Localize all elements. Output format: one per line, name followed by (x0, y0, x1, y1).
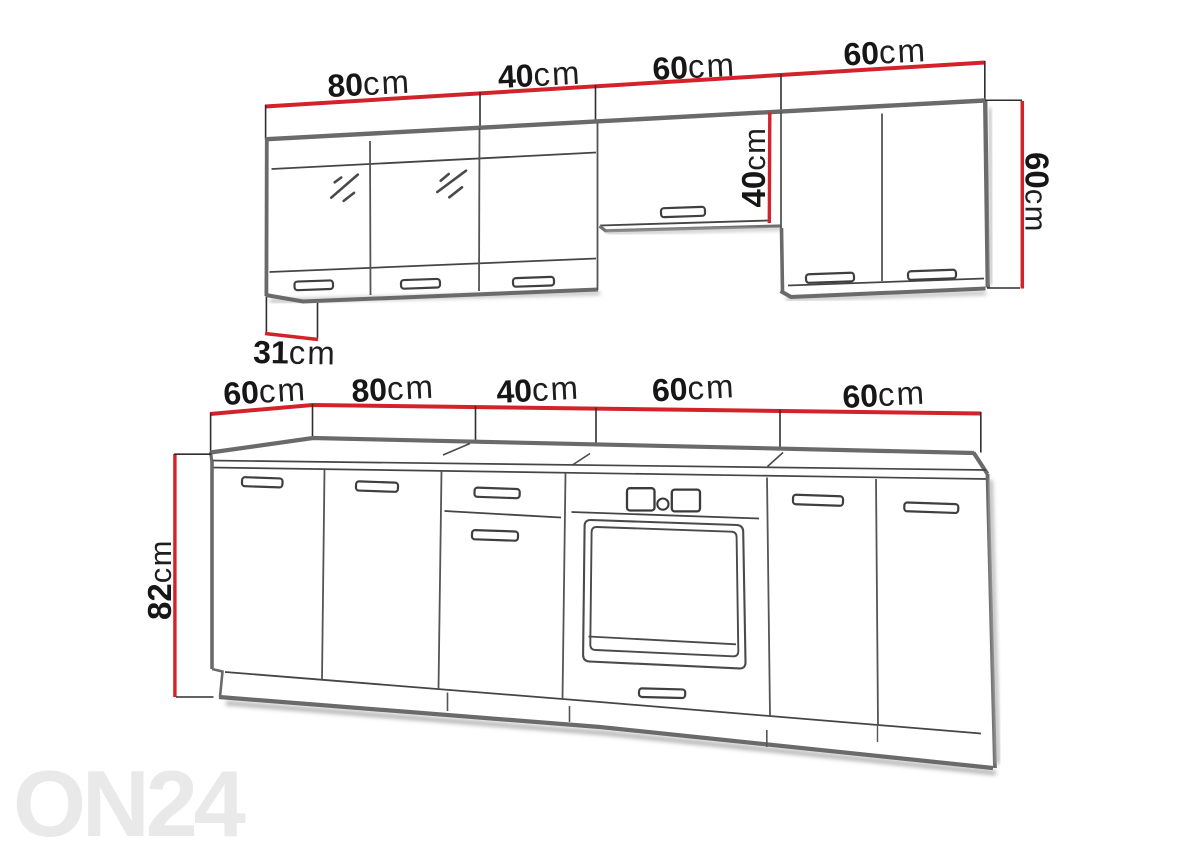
svg-text:40cm: 40cm (495, 369, 580, 410)
svg-text:31cm: 31cm (253, 333, 337, 371)
svg-text:ON24: ON24 (13, 751, 246, 856)
svg-text:40cm: 40cm (735, 127, 772, 208)
svg-text:60cm: 60cm (841, 374, 926, 415)
svg-text:40cm: 40cm (497, 54, 582, 95)
svg-text:60cm: 60cm (222, 370, 308, 412)
svg-text:60cm: 60cm (651, 46, 736, 87)
svg-text:80cm: 80cm (350, 368, 435, 409)
svg-text:80cm: 80cm (326, 63, 411, 104)
svg-text:60cm: 60cm (842, 31, 927, 72)
svg-text:82cm: 82cm (141, 539, 178, 620)
svg-text:60cm: 60cm (651, 367, 736, 408)
svg-text:60cm: 60cm (1019, 152, 1056, 233)
